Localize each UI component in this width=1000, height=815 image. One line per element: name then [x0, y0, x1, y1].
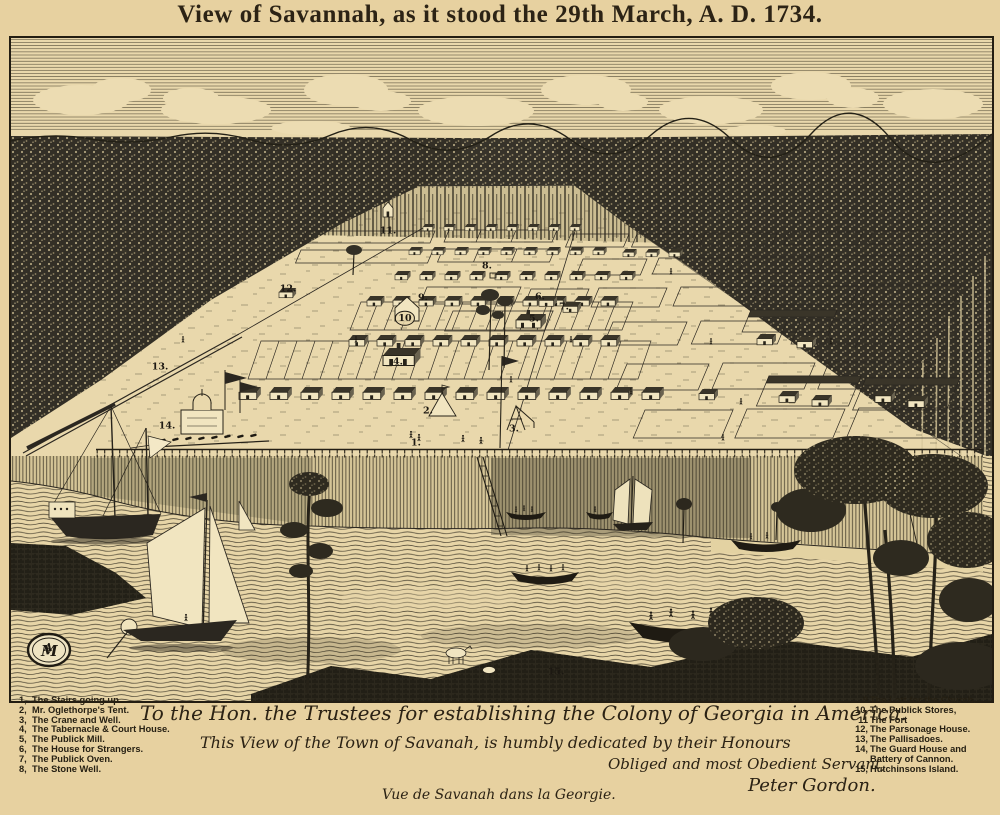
legend-item-text: Mr. Oglethorpe's Tent. [32, 705, 129, 715]
dedication-line-3: Obliged and most Obedient Servant, [608, 755, 886, 773]
page: View of Savannah, as it stood the 29th M… [0, 0, 1000, 815]
page-title: View of Savannah, as it stood the 29th M… [0, 1, 1000, 29]
dedication-line-1: To the Hon. the Trustees for establishin… [140, 701, 860, 725]
legend-item-text: The House for Strangers. [32, 744, 143, 754]
legend-item-text: The Publick Mill. [32, 734, 105, 744]
dedication-line-2: This View of the Town of Savanah, is hum… [200, 733, 780, 752]
svg-text:A: A [43, 641, 53, 654]
legend-item-text: Hutchinsons Island. [870, 765, 986, 775]
legend-item: 8,The Stone Well. [19, 765, 199, 775]
publick-oven [563, 302, 581, 312]
engraving-frame: M A [9, 36, 994, 703]
sky [11, 38, 992, 148]
legend-item-text: The Publick Oven. [32, 754, 113, 764]
parsonage-house [279, 288, 296, 298]
legend-item-text: The Crane and Well. [32, 715, 121, 725]
dedication-caption-french: Vue de Savanah dans la Georgie. [382, 787, 616, 803]
monogram-seal: M A [28, 634, 70, 666]
engraving-art: M A [11, 38, 992, 701]
dedication-signature: Peter Gordon. [748, 775, 876, 796]
legend-item-text: The Stairs going up. [32, 695, 121, 705]
legend-item-text: The Tabernacle & Court House. [32, 724, 170, 734]
legend-item-text: The Stone Well. [32, 764, 101, 774]
legend-item-number: 8, [19, 765, 32, 775]
legend-item-text: The Guard House and Battery of Cannon. [870, 745, 986, 765]
house-for-strangers [539, 296, 557, 306]
